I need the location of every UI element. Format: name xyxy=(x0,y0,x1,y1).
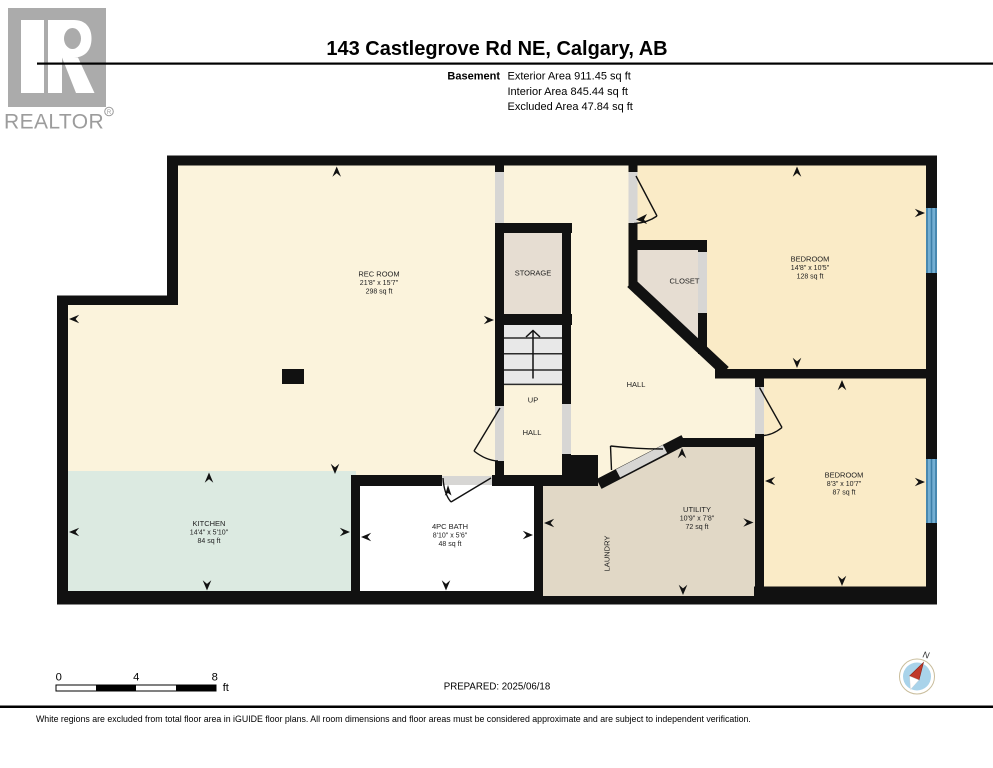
svg-text:LAUNDRY: LAUNDRY xyxy=(603,536,612,572)
svg-text:0: 0 xyxy=(56,672,62,684)
svg-text:298 sq ft: 298 sq ft xyxy=(366,289,393,296)
svg-text:14'8" x 10'5": 14'8" x 10'5" xyxy=(791,265,830,272)
svg-text:ft: ft xyxy=(223,682,229,694)
svg-text:White regions are excluded fro: White regions are excluded from total fl… xyxy=(36,714,751,724)
svg-text:PREPARED: 2025/06/18: PREPARED: 2025/06/18 xyxy=(444,682,550,693)
svg-text:48 sq ft: 48 sq ft xyxy=(439,541,462,548)
svg-text:REC ROOM: REC ROOM xyxy=(358,270,399,279)
svg-text:BEDROOM: BEDROOM xyxy=(791,255,830,264)
svg-text:Excluded Area 47.84 sq ft: Excluded Area 47.84 sq ft xyxy=(508,101,633,113)
svg-text:HALL: HALL xyxy=(523,428,542,437)
svg-text:KITCHEN: KITCHEN xyxy=(193,519,226,528)
svg-text:72 sq ft: 72 sq ft xyxy=(686,524,709,531)
svg-text:8'3" x 10'7": 8'3" x 10'7" xyxy=(827,481,862,488)
svg-text:143 Castlegrove Rd NE, Calgary: 143 Castlegrove Rd NE, Calgary, AB xyxy=(326,38,667,60)
svg-text:14'4" x 5'10": 14'4" x 5'10" xyxy=(190,530,229,537)
svg-text:Basement: Basement xyxy=(447,71,500,83)
svg-text:4: 4 xyxy=(133,672,139,684)
svg-text:UP: UP xyxy=(528,396,538,405)
svg-text:R: R xyxy=(107,110,112,116)
svg-text:BEDROOM: BEDROOM xyxy=(825,471,864,480)
svg-text:HALL: HALL xyxy=(627,380,646,389)
svg-text:21'8" x 15'7": 21'8" x 15'7" xyxy=(360,280,399,287)
svg-text:84 sq ft: 84 sq ft xyxy=(198,538,221,545)
svg-text:4PC BATH: 4PC BATH xyxy=(432,522,468,531)
svg-text:STORAGE: STORAGE xyxy=(515,269,552,278)
svg-text:REALTOR: REALTOR xyxy=(4,111,104,134)
svg-text:UTILITY: UTILITY xyxy=(683,505,711,514)
svg-text:8'10" x 5'6": 8'10" x 5'6" xyxy=(433,533,468,540)
svg-text:87 sq ft: 87 sq ft xyxy=(833,490,856,497)
svg-text:8: 8 xyxy=(212,672,218,684)
svg-text:CLOSET: CLOSET xyxy=(669,277,699,286)
svg-text:Exterior Area 911.45 sq ft: Exterior Area 911.45 sq ft xyxy=(508,71,631,83)
svg-text:128 sq ft: 128 sq ft xyxy=(797,274,824,281)
svg-text:Interior Area 845.44 sq ft: Interior Area 845.44 sq ft xyxy=(508,86,628,98)
svg-text:10'9" x 7'8": 10'9" x 7'8" xyxy=(680,516,715,523)
